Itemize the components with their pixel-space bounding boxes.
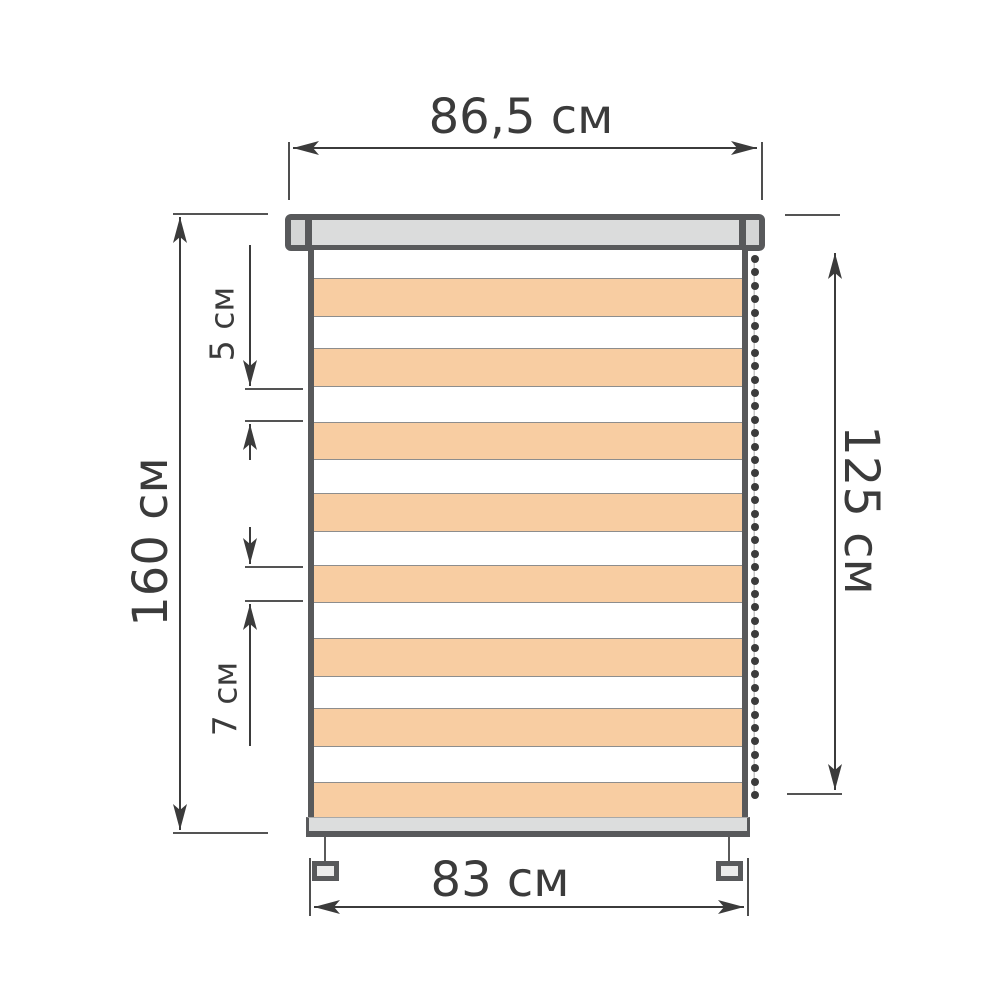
fabric-stripe-orange [314,638,742,677]
chain-bead [751,469,759,477]
fabric-stripe-white [314,317,742,348]
chain-bead [751,684,759,692]
chain-bead [751,617,759,625]
fabric-stripe-orange [314,348,742,387]
chain-bead [751,751,759,759]
clip-string-right [728,837,730,862]
dimension-label-total-height: 160 см [127,457,175,626]
chain-bead [751,563,759,571]
chain-bead [751,697,759,705]
chain-bead [751,483,759,491]
chain-bead [751,536,759,544]
rail-separator-right [739,220,746,245]
chain-bead [751,778,759,786]
chain-bead [751,523,759,531]
chain-bead [751,349,759,357]
chain-bead [751,416,759,424]
chain-bead [751,309,759,317]
chain-bead [751,510,759,518]
fabric-stripe-orange [314,782,742,820]
chain-bead [751,295,759,303]
chain-bead [751,376,759,384]
chain-bead [751,711,759,719]
chain-bead [751,389,759,397]
fabric-stripe-white [314,677,742,708]
fabric-stripe-white [314,603,742,638]
dimension-label-dark-stripe: 7 см [209,662,242,737]
fabric-stripe-white [314,747,742,782]
fabric-stripe-orange [314,278,742,317]
dimension-label-top-width: 86,5 см [429,93,614,141]
fabric-stripe-orange [314,493,742,532]
blind-fabric [308,250,748,820]
dimension-label-light-stripe: 5 см [206,287,239,362]
dimension-label-fabric-width: 83 см [431,856,570,904]
dimension-label-fabric-height: 125 см [837,425,885,594]
chain-bead [751,443,759,451]
chain-bead [751,764,759,772]
bottom-bar [306,817,750,837]
chain-bead [751,550,759,558]
chain-bead [751,322,759,330]
chain-bead [751,335,759,343]
rail-end-cap-right [746,220,759,245]
chain-bead [751,577,759,585]
chain-bead [751,402,759,410]
rail-end-cap-left [291,220,305,245]
fabric-stripe-white [314,387,742,422]
chain-bead [751,724,759,732]
fabric-stripe-white [314,250,742,278]
chain-bead [751,590,759,598]
chain-bead [751,429,759,437]
chain-bead [751,657,759,665]
fabric-stripe-orange [314,565,742,603]
chain-bead [751,737,759,745]
bead-chain [750,255,759,799]
chain-bead [751,282,759,290]
mounting-clip-right [716,861,743,881]
fabric-stripe-white [314,460,742,493]
chain-bead [751,255,759,263]
chain-bead [751,644,759,652]
chain-bead [751,362,759,370]
chain-bead [751,496,759,504]
chain-bead [751,670,759,678]
roller-blind-dimension-diagram: 86,5 см 160 см 125 см 83 см 5 см 7 см [0,0,1000,1000]
chain-bead [751,456,759,464]
fabric-stripe-orange [314,422,742,460]
mounting-clip-left [312,861,339,881]
clip-string-left [324,837,326,862]
chain-bead [751,603,759,611]
chain-bead [751,791,759,799]
rail-separator-left [305,220,312,245]
rail-body [312,220,739,245]
fabric-stripe-orange [314,708,742,747]
top-rail [285,214,765,251]
chain-bead [751,630,759,638]
chain-bead [751,268,759,276]
fabric-stripe-white [314,532,742,565]
